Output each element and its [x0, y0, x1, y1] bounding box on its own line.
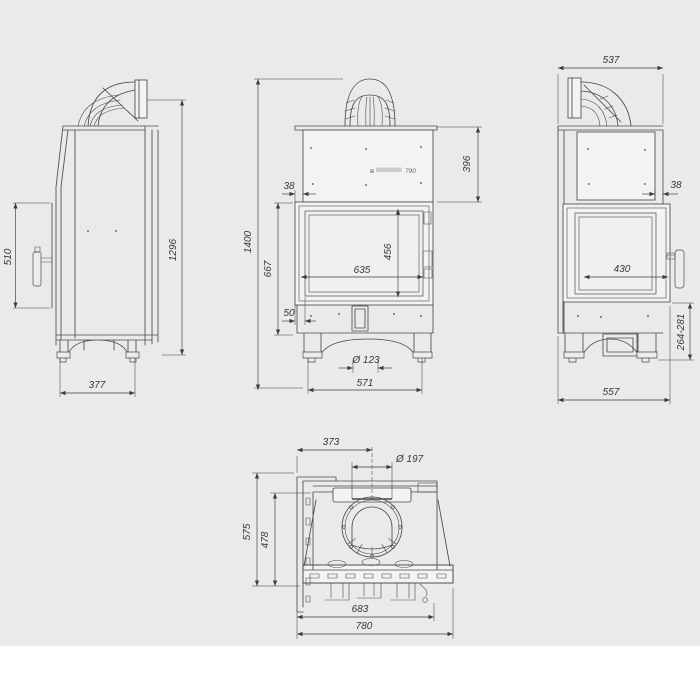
- dim-overall-width-label: 780: [356, 621, 373, 632]
- dim-offset-front-label: 38: [670, 180, 682, 191]
- glass-pane: [305, 211, 423, 296]
- flue-elbow-flange: [135, 80, 147, 118]
- dim-glass-height-label: 456: [383, 243, 394, 260]
- dim-depth-label: 377: [89, 380, 106, 391]
- convection-hood-panel: [577, 132, 655, 200]
- bolt-dot: [587, 148, 589, 150]
- dim-overall-height-label: 1400: [243, 230, 254, 253]
- dim-glass-width-label: 430: [614, 264, 631, 275]
- base-plate: [303, 565, 453, 583]
- door-handle: [675, 250, 684, 288]
- bolt-dot: [420, 182, 422, 184]
- dim-body-height-label: 667: [263, 260, 274, 277]
- glass-pane: [575, 213, 656, 294]
- bolt-dot: [115, 230, 117, 232]
- bolt-dot: [310, 147, 312, 149]
- dim-depth-label: 537: [603, 55, 620, 66]
- technical-drawing: 510 1296 377 ⊕ 790: [0, 0, 700, 700]
- bolt-dot: [393, 313, 395, 315]
- bolt-dot: [588, 183, 590, 185]
- bolt-dot: [420, 315, 422, 317]
- dim-height-label: 1296: [168, 238, 179, 261]
- dim-glass-width-label: 635: [354, 265, 371, 276]
- bolt-dot: [644, 149, 646, 151]
- convection-hood-panel: [303, 130, 433, 202]
- dim-hole-diameter-label: Ø 123: [351, 355, 380, 366]
- dim-offset-top-label: 38: [283, 181, 295, 192]
- flue-elbow-flange: [568, 78, 581, 118]
- brand-mark: ⊕: [369, 168, 374, 175]
- brand-name-blur: [376, 168, 402, 173]
- bottom-strip: [0, 646, 700, 700]
- dim-feet-range-label: 264-281: [676, 314, 687, 352]
- dim-inner-width-label: 683: [352, 604, 369, 615]
- dim-hood-height-label: 396: [462, 155, 473, 172]
- dim-offset-bottom-label: 50: [283, 308, 295, 319]
- bolt-dot: [310, 315, 312, 317]
- door-handle: [33, 252, 41, 286]
- blueprint-page: 510 1296 377 ⊕ 790: [0, 0, 700, 700]
- dim-depth-label: 575: [242, 523, 253, 540]
- bolt-dot: [87, 230, 89, 232]
- brand-model: 790: [405, 168, 416, 175]
- bolt-dot: [644, 183, 646, 185]
- dim-flue-diameter-label: Ø 197: [395, 454, 424, 465]
- bolt-dot: [420, 146, 422, 148]
- bolt-dot: [338, 313, 340, 315]
- dim-base-depth-label: 557: [603, 387, 620, 398]
- dim-inner-depth-label: 478: [260, 531, 271, 548]
- bolt-dot: [577, 315, 579, 317]
- bolt-dot: [365, 184, 367, 186]
- bolt-dot: [647, 315, 649, 317]
- bolt-dot: [312, 183, 314, 185]
- dim-glass-height-label: 510: [3, 248, 14, 265]
- dim-flue-offset-label: 373: [323, 437, 340, 448]
- dim-base-width-label: 571: [357, 378, 374, 389]
- canvas-background: [0, 0, 700, 646]
- bolt-dot: [600, 316, 602, 318]
- bolt-dot: [365, 148, 367, 150]
